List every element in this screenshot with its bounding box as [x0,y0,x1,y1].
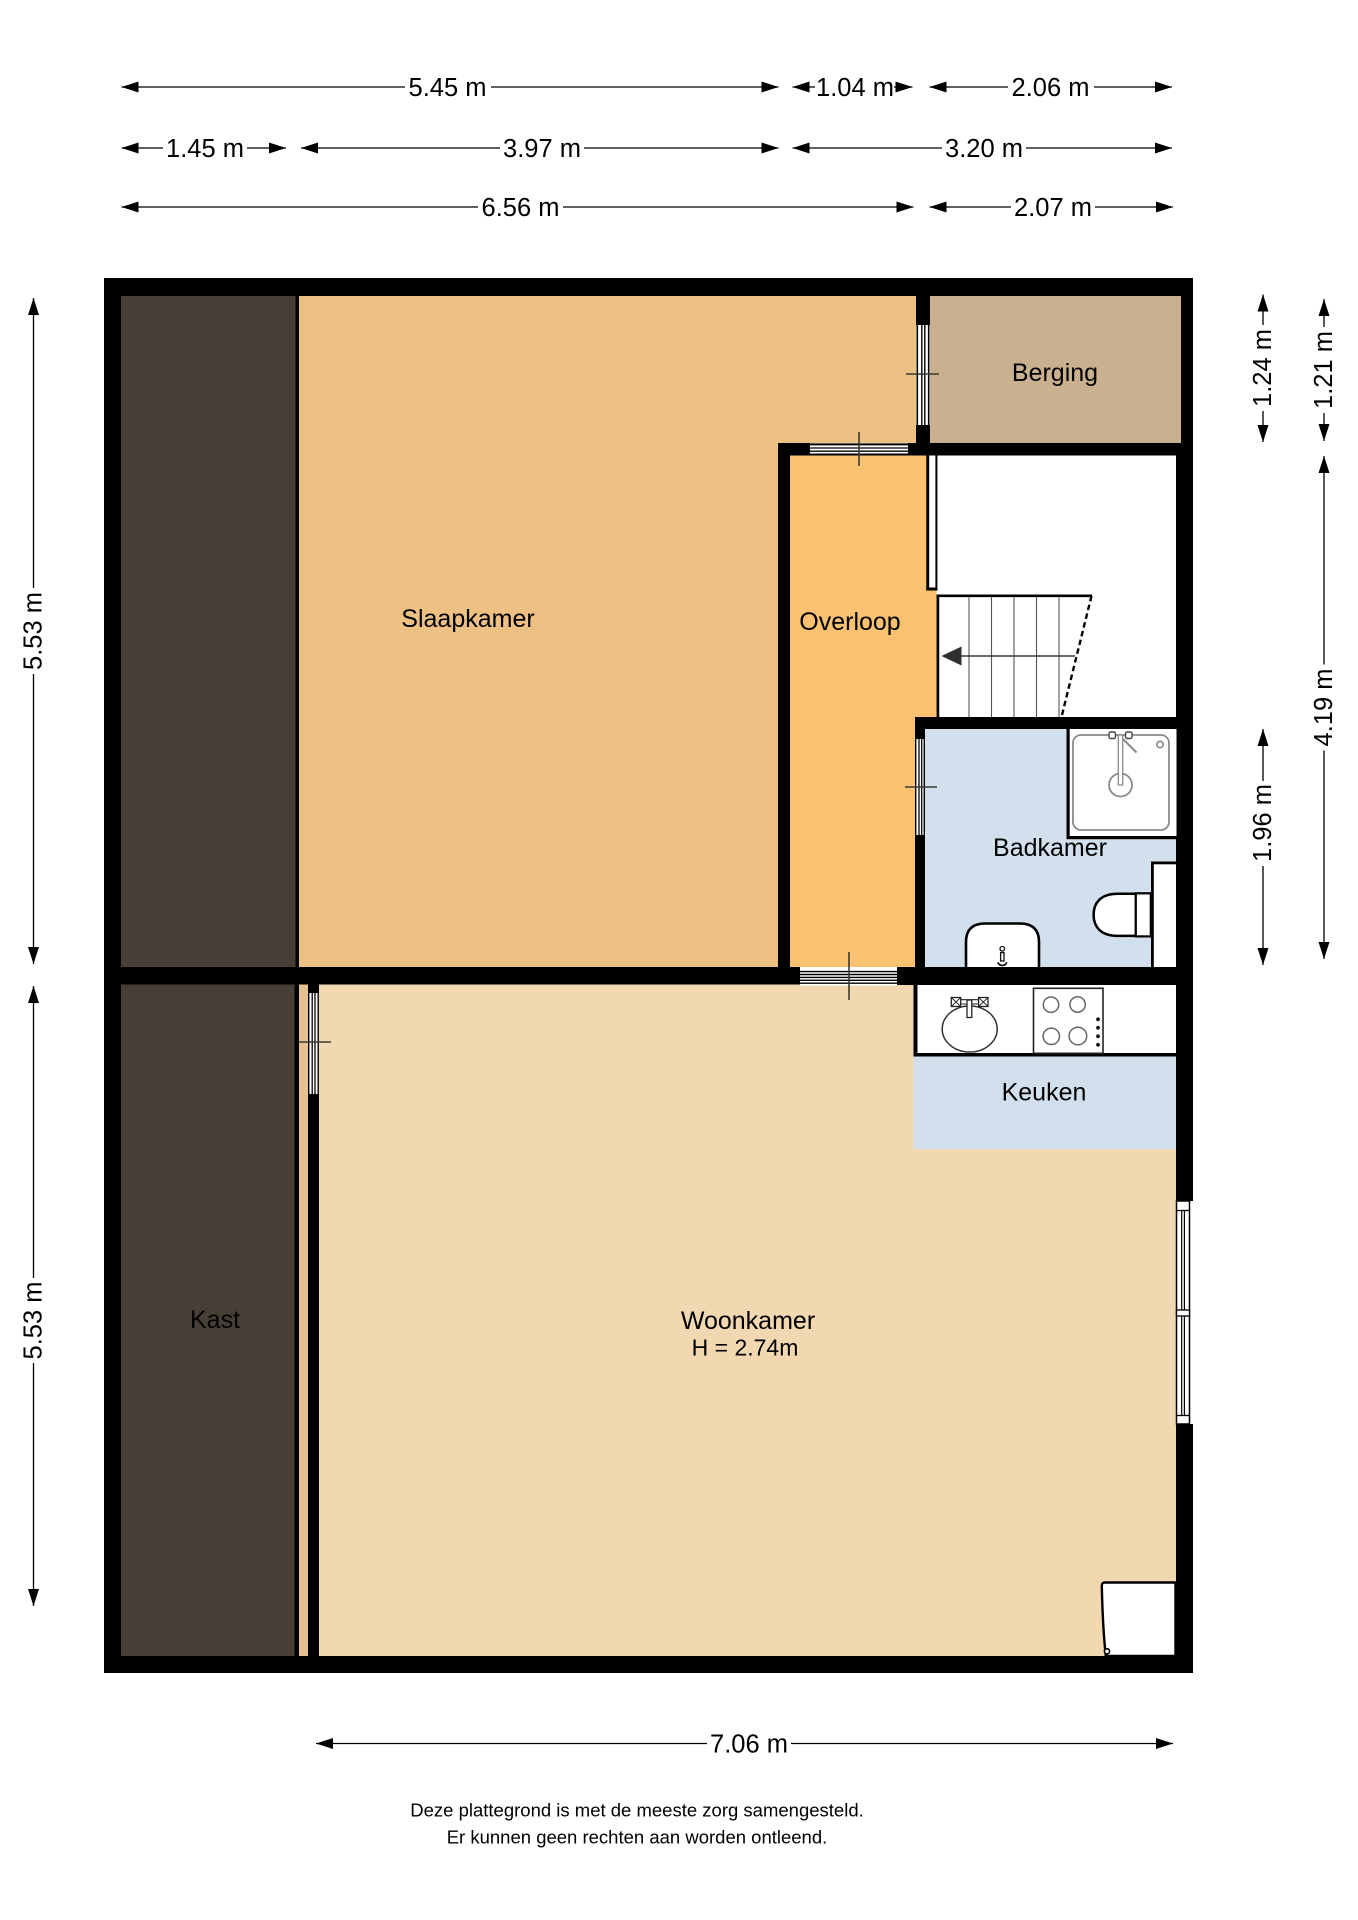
svg-text:1.04 m: 1.04 m [816,74,894,102]
svg-text:Woonkamer: Woonkamer [681,1307,815,1335]
svg-text:5.45 m: 5.45 m [409,74,487,102]
svg-text:5.53 m: 5.53 m [20,1282,48,1360]
svg-text:3.97 m: 3.97 m [503,135,581,163]
svg-text:Slaapkamer: Slaapkamer [401,605,534,633]
svg-text:5.53 m: 5.53 m [20,592,48,670]
svg-text:Berging: Berging [1012,359,1098,387]
svg-text:1.24 m: 1.24 m [1249,329,1277,407]
svg-text:Deze plattegrond is met de mee: Deze plattegrond is met de meeste zorg s… [410,1800,864,1821]
svg-text:Overloop: Overloop [799,608,900,636]
svg-text:Keuken: Keuken [1002,1079,1087,1107]
svg-text:2.06 m: 2.06 m [1012,74,1090,102]
svg-text:1.96 m: 1.96 m [1249,784,1277,862]
svg-text:7.06 m: 7.06 m [710,1731,788,1759]
svg-text:H = 2.74m: H = 2.74m [692,1335,799,1361]
svg-text:1.45 m: 1.45 m [166,135,244,163]
svg-text:2.07 m: 2.07 m [1014,194,1092,222]
svg-text:4.19 m: 4.19 m [1310,669,1338,747]
svg-text:1.21 m: 1.21 m [1310,331,1338,409]
svg-text:Kast: Kast [190,1306,240,1334]
svg-text:Badkamer: Badkamer [993,834,1107,862]
svg-text:6.56 m: 6.56 m [482,194,560,222]
svg-text:Er kunnen geen rechten aan wor: Er kunnen geen rechten aan worden ontlee… [447,1827,828,1848]
svg-text:3.20 m: 3.20 m [945,135,1023,163]
